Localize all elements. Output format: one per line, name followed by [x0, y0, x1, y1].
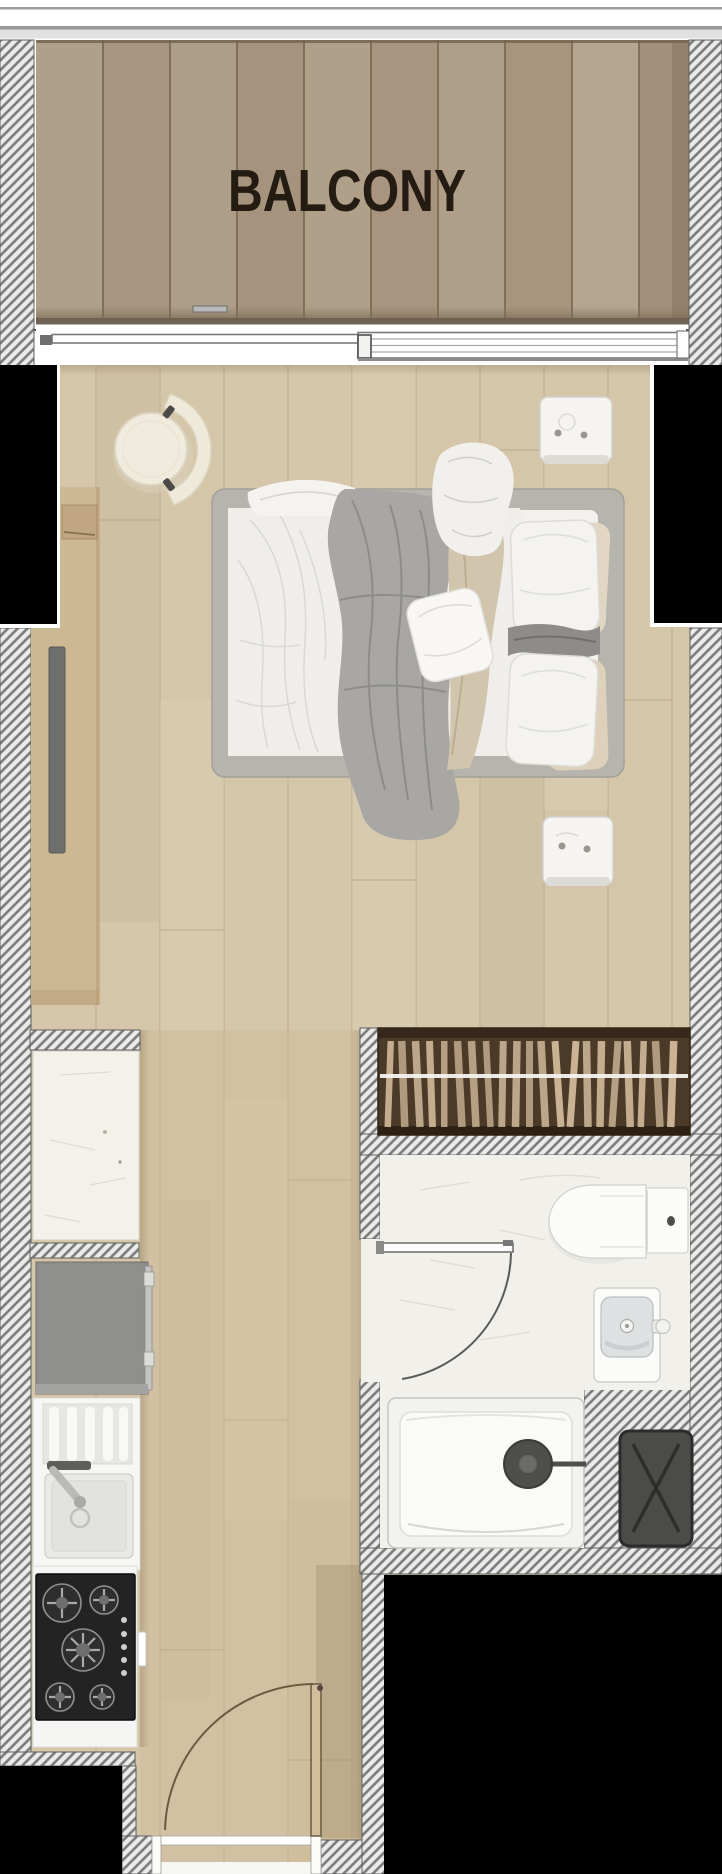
svg-text:BALCONY: BALCONY [228, 158, 466, 224]
